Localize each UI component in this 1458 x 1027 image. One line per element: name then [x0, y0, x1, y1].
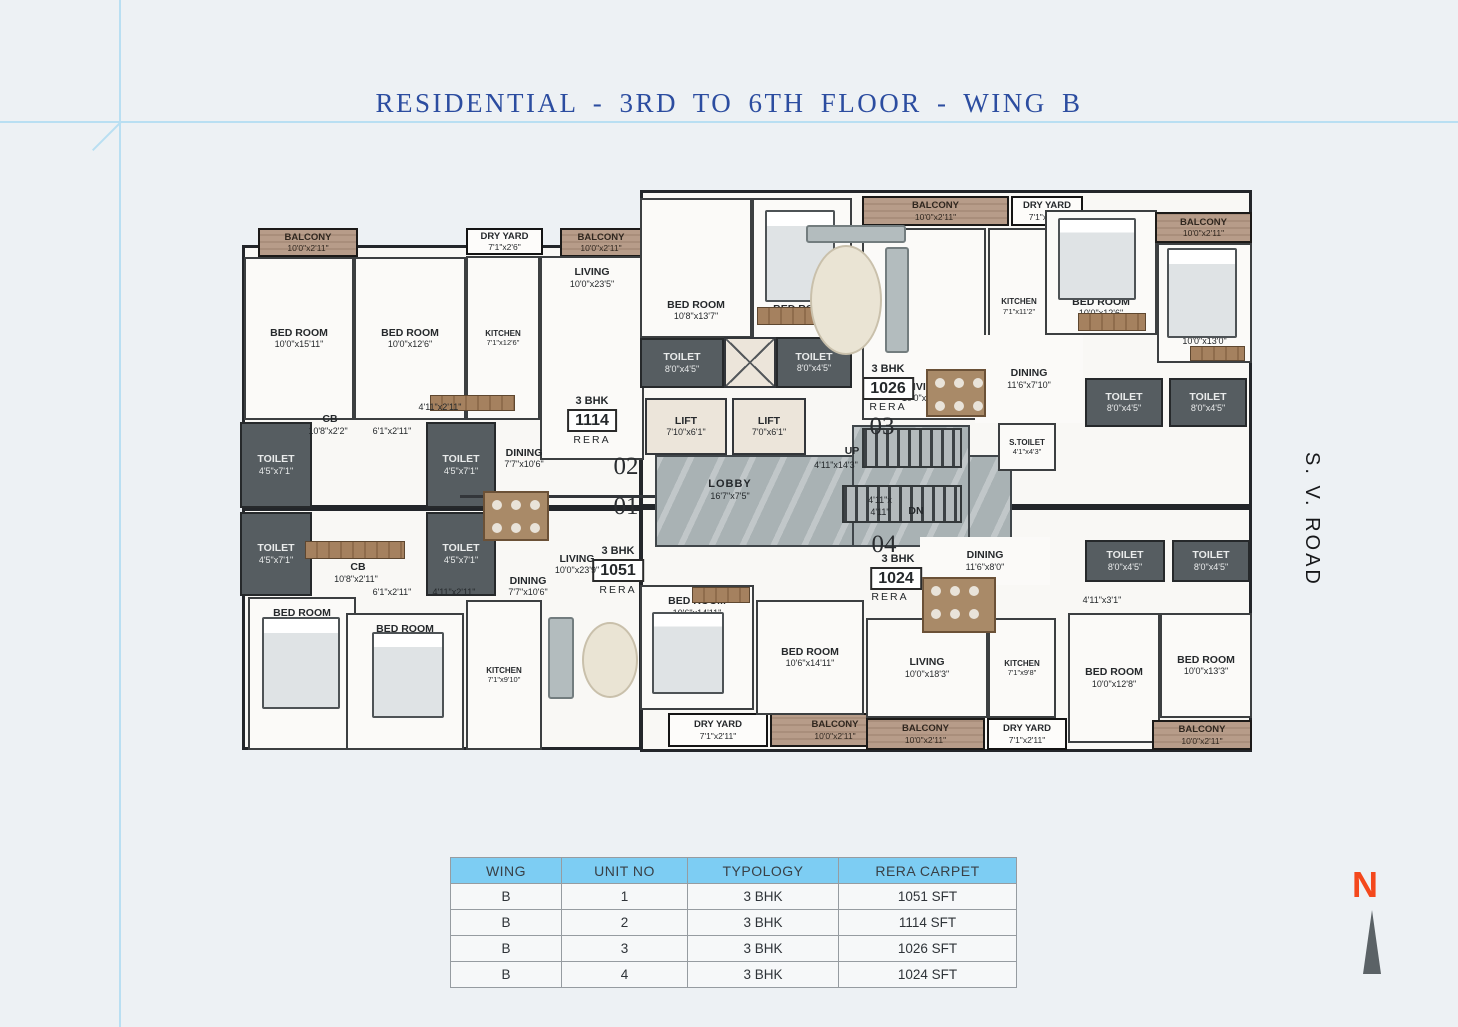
table-row: B13 BHK1051 SFT	[451, 884, 1017, 910]
room-name-label: TOILET	[1189, 391, 1226, 404]
plan-label: DINING	[506, 447, 543, 459]
plan-label: CB	[350, 561, 365, 573]
room-name-label: TOILET	[257, 453, 294, 466]
shaft-area	[724, 337, 776, 388]
table-header-cell: UNIT NO	[562, 858, 688, 884]
room-dims-label: 10'0"x12'8"	[1092, 679, 1136, 690]
room-dry-yard: DRY YARD7'1"x2'11"	[668, 713, 768, 747]
room-name-label: BED ROOM	[381, 327, 439, 340]
table-cell: B	[451, 962, 562, 988]
room-dims-label: 7'10"x6'1"	[666, 427, 705, 438]
plan-label: 3 BHK	[575, 395, 608, 407]
room-name-label: KITCHEN	[1001, 297, 1037, 307]
room-dims-label: 8'0"x4'5"	[797, 363, 831, 374]
room-dims-label: 7'1"x12'6"	[487, 338, 520, 347]
room-dims-label: 10'8"x13'7"	[674, 311, 718, 322]
room-dims-label: 4'5"x7'1"	[259, 555, 293, 566]
guide-line-vertical	[119, 0, 121, 1027]
room-dims-label: 8'0"x4'5"	[1107, 403, 1141, 414]
room-toilet: TOILET8'0"x4'5"	[1169, 378, 1247, 427]
room-s-toilet: S.TOILET4'1"x4'3"	[998, 423, 1056, 471]
table-icon	[483, 491, 549, 541]
room-name-label: TOILET	[442, 453, 479, 466]
room-dims-label: 7'1"x2'11"	[1009, 735, 1046, 745]
room-name-label: BALCONY	[285, 232, 332, 243]
room-balcony: BALCONY10'0"x2'11"	[560, 228, 642, 257]
room-kitchen: KITCHEN7'1"x9'10"	[466, 600, 542, 750]
room-name-label: LIVING	[909, 656, 944, 669]
room-balcony: BALCONY10'0"x2'11"	[1152, 720, 1252, 750]
page-title: RESIDENTIAL - 3RD TO 6TH FLOOR - WING B	[0, 88, 1458, 119]
room-name-label: BED ROOM	[1177, 654, 1235, 667]
road-label: S. V. ROAD	[1300, 452, 1323, 587]
room-dims-label: 10'0"x15'11"	[275, 339, 324, 350]
room-name-label: KITCHEN	[486, 666, 522, 676]
sofa-icon	[806, 225, 906, 243]
room-name-label: DINING	[1011, 367, 1048, 380]
room-dims-label: 11'6"x8'0"	[966, 562, 1005, 573]
table-cell: 1	[562, 884, 688, 910]
plan-label: 02	[614, 453, 639, 481]
plan-label: 1114	[567, 409, 617, 432]
table-cell: 1026 SFT	[839, 936, 1017, 962]
room-name-label: BALCONY	[1179, 724, 1226, 735]
plan-label: 10'8"x2'2"	[308, 426, 347, 436]
plan-label: 10'0"x23'9"	[555, 565, 599, 575]
room-dims-label: 8'0"x4'5"	[1191, 403, 1225, 414]
plan-label: 01	[614, 493, 639, 521]
wd-icon	[305, 541, 405, 559]
plan-label: 4'11"x2'11"	[432, 587, 475, 597]
plan-label: LOBBY	[708, 478, 752, 490]
room-dims-label: 8'0"x4'5"	[1108, 562, 1142, 573]
room-dims-label: 11'6"x7'10"	[1007, 380, 1051, 391]
plan-label: DINING	[510, 575, 547, 587]
room-living: LIVING10'0"x18'3"	[866, 618, 988, 718]
room-name-label: BALCONY	[812, 719, 859, 730]
room-name-label: BALCONY	[1180, 217, 1227, 228]
room-bed-room: BED ROOM10'0"x15'11"	[244, 257, 354, 420]
room-toilet: TOILET8'0"x4'5"	[640, 338, 724, 388]
room-dims-label: 8'0"x4'5"	[1194, 562, 1228, 573]
table-cell: B	[451, 884, 562, 910]
plan-label: 4'11"x	[868, 495, 892, 505]
summary-table-head: WINGUNIT NOTYPOLOGYRERA CARPET	[451, 858, 1017, 884]
rug-icon	[582, 622, 638, 698]
room-name-label: DRY YARD	[480, 231, 528, 242]
room-dining: DINING11'6"x7'10"	[975, 335, 1083, 423]
bed-icon	[372, 632, 444, 718]
guide-line-horizontal	[0, 121, 1458, 123]
plan-label: 6'1"x2'11"	[373, 587, 412, 597]
table-icon	[922, 577, 996, 633]
table-cell: B	[451, 910, 562, 936]
room-name-label: TOILET	[1105, 391, 1142, 404]
table-cell: 3 BHK	[688, 962, 839, 988]
room-name-label: DRY YARD	[694, 719, 742, 730]
sofa-icon	[548, 617, 574, 699]
room-dims-label: 4'5"x7'1"	[259, 466, 293, 477]
plan-label: UP	[845, 445, 860, 457]
room-dims-label: 10'0"x2'11"	[814, 731, 855, 741]
plan-label: 4'11"x2'11"	[418, 402, 461, 412]
room-dims-label: 4'5"x7'1"	[444, 466, 478, 477]
north-arrow-icon	[1363, 910, 1381, 974]
table-icon	[926, 369, 986, 417]
wd-icon	[1078, 313, 1146, 331]
room-toilet: TOILET4'5"x7'1"	[240, 512, 312, 596]
room-name-label: TOILET	[795, 351, 832, 364]
summary-table: WINGUNIT NOTYPOLOGYRERA CARPET B13 BHK10…	[450, 857, 1017, 988]
room-balcony: BALCONY10'0"x2'11"	[258, 228, 358, 257]
plan-label: 10'8"x2'11"	[334, 574, 378, 584]
room-kitchen: KITCHEN7'1"x9'8"	[988, 618, 1056, 718]
room-name-label: DINING	[967, 549, 1004, 562]
room-name-label: TOILET	[1192, 549, 1229, 562]
stairs-area	[842, 485, 962, 523]
plan-label: RERA	[573, 434, 610, 446]
plan-label: RERA	[869, 401, 906, 413]
room-dims-label: 7'1"x9'8"	[1008, 668, 1037, 677]
plan-label: CB	[322, 413, 337, 425]
room-name-label: TOILET	[663, 351, 700, 364]
room-dims-label: 7'0"x6'1"	[752, 427, 786, 438]
plan-label: 3 BHK	[601, 545, 634, 557]
room-name-label: BED ROOM	[1085, 666, 1143, 679]
plan-label: 1026	[862, 377, 914, 400]
room-dry-yard: DRY YARD7'1"x2'6"	[466, 228, 543, 255]
bed-icon	[1167, 248, 1237, 338]
plan-label: 6'1"x2'11"	[373, 426, 412, 436]
room-dry-yard: DRY YARD7'1"x2'11"	[987, 718, 1067, 750]
table-row: B43 BHK1024 SFT	[451, 962, 1017, 988]
room-toilet: TOILET8'0"x4'5"	[1085, 540, 1165, 582]
room-bed-room: BED ROOM10'8"x13'7"	[640, 198, 752, 338]
room-dims-label: 10'0"x18'3"	[905, 669, 949, 680]
plan-label: 7'7"x10'6"	[504, 459, 543, 469]
room-bed-room: BED ROOM10'6"x14'11"	[756, 600, 864, 715]
room-name-label: LIFT	[758, 415, 780, 428]
room-toilet: TOILET8'0"x4'5"	[1085, 378, 1163, 427]
room-lift: LIFT7'10"x6'1"	[645, 398, 727, 455]
table-cell: 2	[562, 910, 688, 936]
plan-label: 4'11"	[870, 507, 889, 517]
room-dims-label: 10'0"x23'5"	[570, 279, 614, 290]
table-cell: 3 BHK	[688, 910, 839, 936]
room-name-label: DRY YARD	[1003, 723, 1051, 734]
table-header-cell: RERA CARPET	[839, 858, 1017, 884]
room-dims-label: 10'0"x2'11"	[287, 243, 328, 253]
room-name-label: TOILET	[1106, 549, 1143, 562]
room-name-label: BALCONY	[912, 200, 959, 211]
table-cell: 4	[562, 962, 688, 988]
table-header-cell: WING	[451, 858, 562, 884]
plan-label: 1051	[592, 559, 644, 582]
room-name-label: BED ROOM	[270, 327, 328, 340]
room-dims-label: 8'0"x4'5"	[665, 364, 699, 375]
room-dims-label: 7'1"x9'10"	[488, 675, 521, 684]
table-cell: 3 BHK	[688, 884, 839, 910]
wd-icon	[1190, 346, 1245, 361]
table-cell: 1114 SFT	[839, 910, 1017, 936]
plan-label: RERA	[871, 591, 908, 603]
room-name-label: KITCHEN	[485, 329, 521, 339]
room-balcony: BALCONY10'0"x2'11"	[866, 718, 985, 750]
room-name-label: LIVING	[574, 266, 609, 279]
plan-label: 1024	[870, 567, 922, 590]
table-cell: 3 BHK	[688, 936, 839, 962]
plan-label: 03	[870, 413, 895, 441]
floor-plan: BALCONY10'0"x2'11"DRY YARD7'1"x2'6"BALCO…	[240, 185, 1262, 765]
room-dims-label: 10'6"x14'11"	[786, 658, 835, 669]
bed-icon	[262, 617, 340, 709]
plan-label: 4'11"x14'3"	[814, 460, 858, 470]
summary-table-body: B13 BHK1051 SFTB23 BHK1114 SFTB33 BHK102…	[451, 884, 1017, 988]
north-label: N	[1352, 864, 1378, 906]
room-dims-label: 10'0"x12'6"	[388, 339, 432, 350]
room-dims-label: 7'1"x11'2"	[1003, 307, 1035, 316]
sofa-icon	[885, 247, 909, 353]
bed-icon	[652, 612, 724, 694]
room-bed-room: BED ROOM10'0"x12'8"	[1068, 613, 1160, 743]
room-name-label: KITCHEN	[1004, 659, 1040, 669]
plan-label: RERA	[599, 584, 636, 596]
room-bed-room: BED ROOM10'0"x13'3"	[1160, 613, 1252, 718]
table-row: B33 BHK1026 SFT	[451, 936, 1017, 962]
room-name-label: BALCONY	[578, 232, 625, 243]
plan-label: 7'7"x10'6"	[508, 587, 547, 597]
room-dims-label: 10'0"x2'11"	[1181, 736, 1222, 746]
room-lift: LIFT7'0"x6'1"	[732, 398, 806, 455]
room-name-label: BED ROOM	[781, 646, 839, 659]
room-dims-label: 7'1"x2'6"	[488, 242, 520, 252]
guide-line-diagonal	[92, 121, 122, 151]
table-cell: 3	[562, 936, 688, 962]
room-balcony: BALCONY10'0"x2'11"	[862, 196, 1009, 226]
room-dims-label: 10'0"x2'11"	[580, 243, 621, 253]
room-name-label: LIFT	[675, 415, 697, 428]
room-balcony: BALCONY10'0"x2'11"	[1155, 212, 1252, 243]
table-cell: 1051 SFT	[839, 884, 1017, 910]
plan-label: 3 BHK	[871, 363, 904, 375]
plan-label: 16'7"x7'5"	[710, 491, 749, 501]
table-cell: 1024 SFT	[839, 962, 1017, 988]
plan-label: 4'11"x3'1"	[1083, 595, 1122, 605]
room-dims-label: 10'0"x2'11"	[1183, 228, 1224, 238]
wd-icon	[692, 587, 750, 603]
table-row: B23 BHK1114 SFT	[451, 910, 1017, 936]
room-name-label: S.TOILET	[1009, 438, 1045, 448]
rug-icon	[810, 245, 882, 355]
room-dims-label: 7'1"x2'11"	[700, 731, 737, 741]
room-dims-label: 10'0"x13'3"	[1184, 666, 1228, 677]
room-dims-label: 10'0"x2'11"	[905, 735, 946, 745]
room-name-label: BED ROOM	[667, 299, 725, 312]
room-dims-label: 4'5"x7'1"	[444, 555, 478, 566]
room-dims-label: 10'0"x2'11"	[915, 212, 956, 222]
room-toilet: TOILET8'0"x4'5"	[1172, 540, 1250, 582]
plan-label: 3 BHK	[881, 553, 914, 565]
plan-label: LIVING	[559, 553, 594, 565]
room-toilet: TOILET4'5"x7'1"	[240, 422, 312, 508]
room-name-label: TOILET	[257, 542, 294, 555]
room-dims-label: 4'1"x4'3"	[1013, 447, 1042, 456]
room-name-label: TOILET	[442, 542, 479, 555]
room-name-label: BALCONY	[902, 723, 949, 734]
table-cell: B	[451, 936, 562, 962]
plan-label: DN	[908, 505, 923, 517]
bed-icon	[1058, 218, 1136, 300]
table-header-cell: TYPOLOGY	[688, 858, 839, 884]
